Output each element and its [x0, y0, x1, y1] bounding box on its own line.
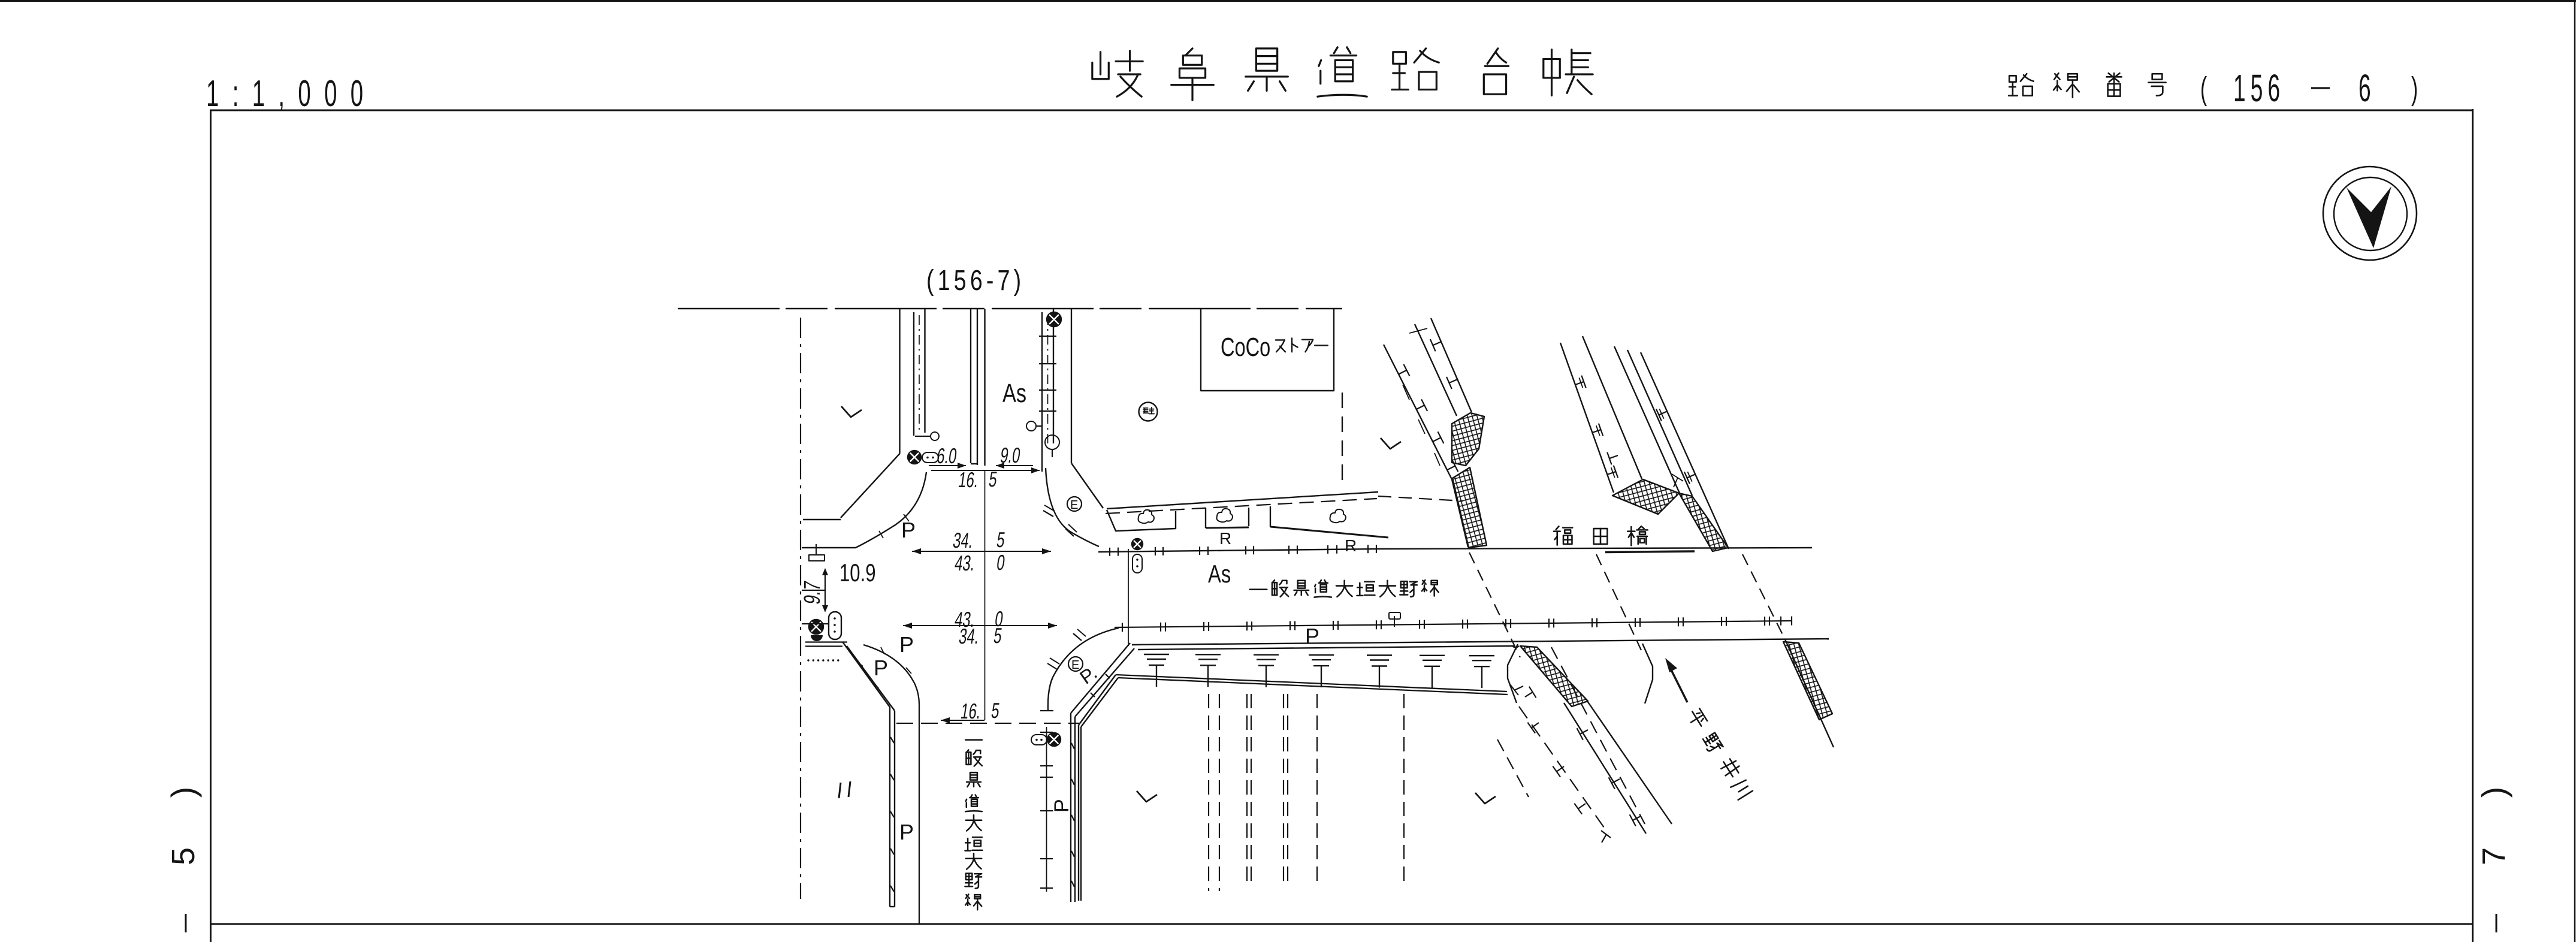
- svg-text:R: R: [1219, 529, 1231, 548]
- svg-text:9.7: 9.7: [800, 579, 825, 606]
- svg-text:P: P: [1050, 799, 1073, 813]
- svg-text:7: 7: [2476, 847, 2512, 865]
- svg-text:16.: 16.: [959, 699, 983, 723]
- svg-text:5: 5: [165, 847, 201, 865]
- svg-text:10.9: 10.9: [839, 558, 875, 587]
- svg-text:P: P: [874, 656, 888, 680]
- svg-text:43.: 43.: [953, 551, 977, 575]
- svg-text:P: P: [901, 518, 916, 542]
- svg-text:): ): [2411, 70, 2418, 107]
- svg-text:(156-7): (156-7): [926, 265, 1025, 297]
- svg-text:CoCo: CoCo: [1221, 333, 1270, 362]
- svg-text:9.0: 9.0: [999, 443, 1022, 467]
- svg-text:6: 6: [2358, 68, 2371, 110]
- svg-text:P: P: [899, 820, 914, 844]
- svg-text:As: As: [1208, 560, 1231, 588]
- svg-text:P: P: [1305, 624, 1319, 648]
- svg-text:156: 156: [2233, 68, 2285, 110]
- svg-text:): ): [2475, 787, 2512, 798]
- svg-text:34.: 34.: [958, 624, 981, 648]
- svg-text:34.: 34.: [952, 528, 975, 552]
- svg-text:As: As: [1002, 379, 1026, 408]
- svg-text:6.0: 6.0: [935, 443, 959, 468]
- svg-text:E: E: [1071, 659, 1079, 672]
- svg-text:P: P: [899, 632, 914, 657]
- svg-text:R: R: [1345, 536, 1357, 555]
- svg-text:16.: 16.: [957, 467, 980, 492]
- svg-text:1:1,000: 1:1,000: [206, 73, 376, 114]
- svg-text:E: E: [1070, 499, 1078, 512]
- svg-text:): ): [164, 787, 202, 798]
- svg-text:(: (: [2200, 70, 2207, 107]
